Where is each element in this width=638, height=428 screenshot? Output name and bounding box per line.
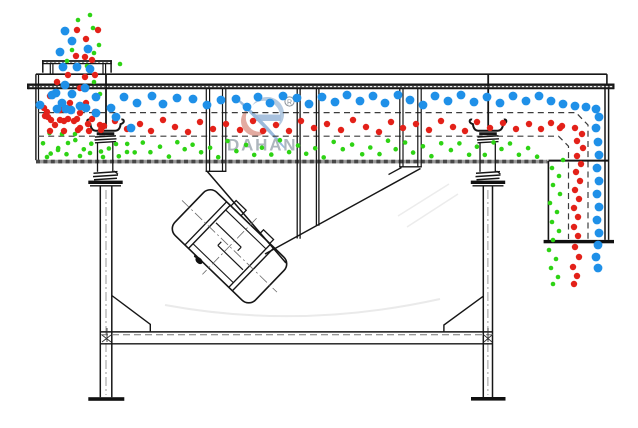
svg-text:R: R (287, 100, 292, 107)
